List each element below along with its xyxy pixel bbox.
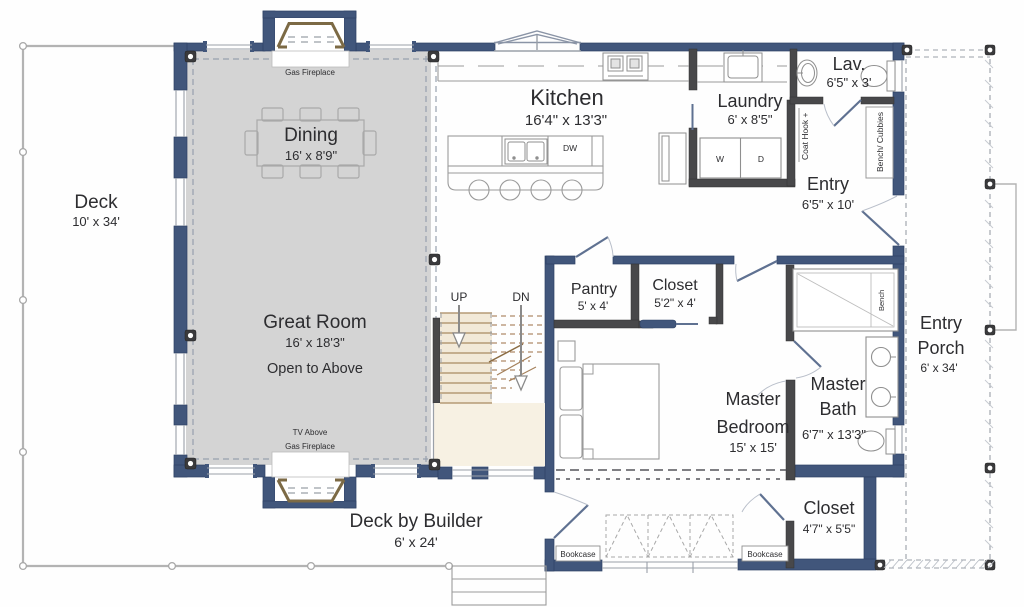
svg-text:Closet: Closet (652, 277, 698, 294)
svg-text:Bench: Bench (877, 290, 886, 311)
svg-text:Coat Hook +: Coat Hook + (800, 112, 810, 160)
svg-text:Bookcase: Bookcase (560, 550, 596, 559)
svg-text:Dining: Dining (284, 125, 338, 146)
svg-text:W: W (716, 154, 724, 164)
svg-text:Bath: Bath (819, 399, 856, 419)
svg-text:5'2" x 4': 5'2" x 4' (654, 296, 696, 310)
svg-text:6' x 24': 6' x 24' (394, 534, 437, 550)
svg-text:6'5" x 3': 6'5" x 3' (827, 75, 872, 90)
svg-text:6'5" x 10': 6'5" x 10' (802, 197, 854, 212)
svg-text:Closet: Closet (803, 498, 854, 518)
svg-text:Pantry: Pantry (571, 281, 617, 298)
svg-text:Entry: Entry (920, 313, 962, 333)
svg-text:Deck: Deck (74, 192, 118, 213)
svg-text:UP: UP (451, 290, 468, 304)
svg-text:Open to Above: Open to Above (267, 361, 363, 377)
svg-text:16' x 8'9": 16' x 8'9" (285, 148, 338, 163)
svg-text:Bench/ Cubbies: Bench/ Cubbies (875, 112, 885, 172)
svg-text:Great Room: Great Room (263, 312, 366, 333)
svg-text:DW: DW (563, 143, 577, 153)
svg-text:Lav.: Lav. (833, 54, 866, 74)
svg-text:Bedroom: Bedroom (716, 417, 789, 437)
svg-text:6' x 8'5": 6' x 8'5" (728, 112, 773, 127)
svg-text:DN: DN (512, 290, 529, 304)
svg-text:Laundry: Laundry (717, 91, 782, 111)
svg-text:TV Above: TV Above (293, 428, 328, 437)
svg-text:Bookcase: Bookcase (747, 550, 783, 559)
svg-text:6' x 34': 6' x 34' (920, 361, 957, 375)
svg-text:D: D (758, 154, 764, 164)
svg-text:6'7" x 13'3": 6'7" x 13'3" (802, 427, 866, 442)
svg-text:Kitchen: Kitchen (530, 85, 603, 110)
svg-text:16'4" x 13'3": 16'4" x 13'3" (525, 112, 607, 129)
svg-text:16' x 18'3": 16' x 18'3" (285, 335, 345, 350)
svg-text:Porch: Porch (917, 338, 964, 358)
svg-text:10' x 34': 10' x 34' (72, 214, 120, 229)
svg-text:15' x 15': 15' x 15' (729, 440, 777, 455)
svg-text:Master: Master (725, 389, 780, 409)
svg-text:5' x 4': 5' x 4' (578, 299, 609, 313)
svg-text:Deck by Builder: Deck by Builder (349, 511, 483, 532)
svg-text:Entry: Entry (807, 174, 849, 194)
svg-text:Gas Fireplace: Gas Fireplace (285, 68, 335, 77)
svg-text:Gas Fireplace: Gas Fireplace (285, 442, 335, 451)
svg-text:4'7" x 5'5": 4'7" x 5'5" (803, 522, 855, 536)
svg-text:Master: Master (810, 374, 865, 394)
